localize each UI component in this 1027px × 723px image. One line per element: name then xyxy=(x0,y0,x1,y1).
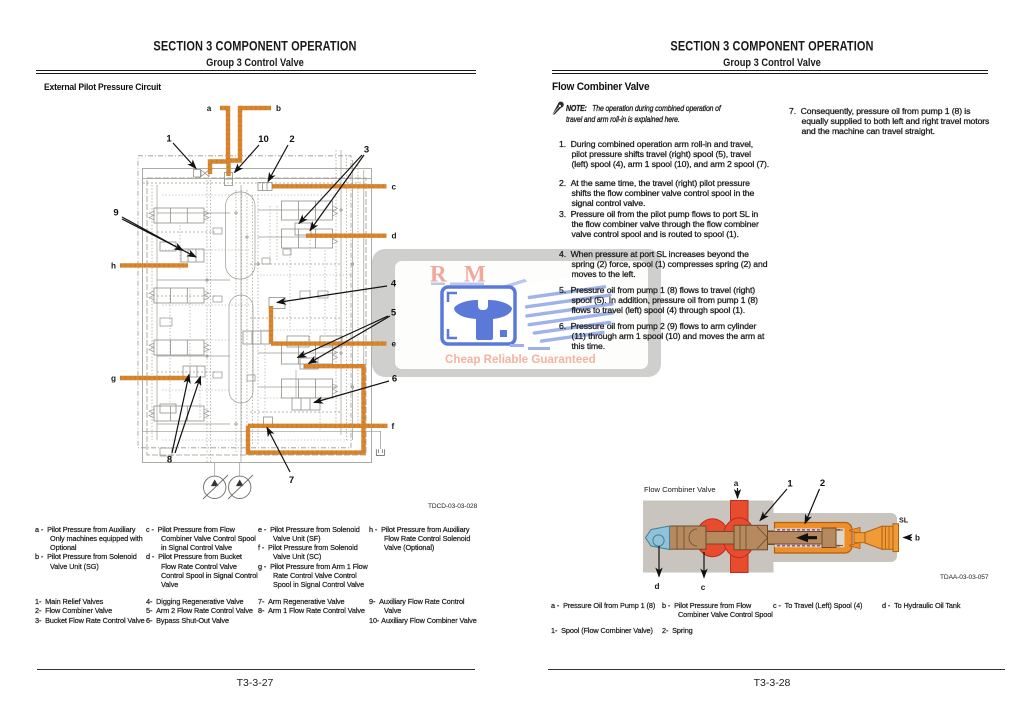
svg-text:8: 8 xyxy=(167,455,172,466)
svg-text:1: 1 xyxy=(166,134,172,145)
svg-text:2: 2 xyxy=(289,134,294,145)
svg-text:d: d xyxy=(654,582,659,591)
svg-text:Flow Combiner Valve: Flow Combiner Valve xyxy=(644,485,716,494)
svg-text:e: e xyxy=(392,340,397,349)
svg-text:h: h xyxy=(111,261,116,270)
svg-text:g: g xyxy=(111,374,116,383)
svg-text:a: a xyxy=(207,104,212,113)
svg-text:7: 7 xyxy=(289,475,294,486)
svg-text:10: 10 xyxy=(258,134,269,145)
svg-text:5: 5 xyxy=(391,308,397,319)
svg-text:2: 2 xyxy=(820,478,825,489)
svg-text:d: d xyxy=(392,232,397,241)
svg-text:b: b xyxy=(276,104,281,113)
svg-text:6: 6 xyxy=(392,374,397,385)
svg-text:SL: SL xyxy=(899,516,909,525)
svg-text:1: 1 xyxy=(787,479,793,490)
svg-text:3: 3 xyxy=(364,145,369,156)
svg-text:4: 4 xyxy=(391,279,397,290)
svg-text:c: c xyxy=(701,583,706,592)
svg-text:c: c xyxy=(392,182,397,191)
svg-text:f: f xyxy=(392,422,395,431)
svg-text:b: b xyxy=(915,534,920,543)
svg-text:a: a xyxy=(734,479,739,488)
svg-text:9: 9 xyxy=(113,208,118,219)
